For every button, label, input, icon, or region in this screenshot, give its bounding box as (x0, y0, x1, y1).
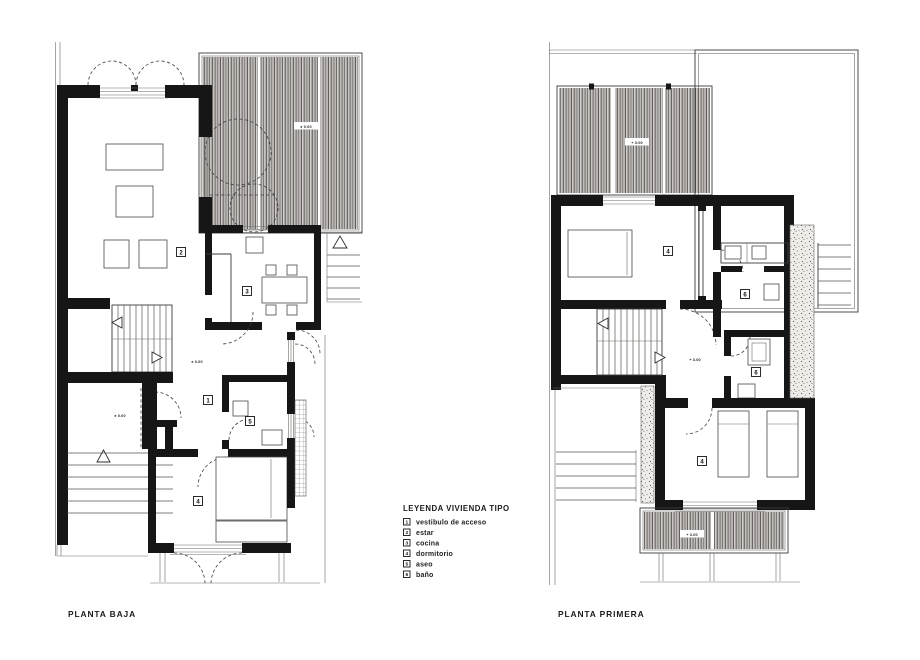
wall-west (148, 449, 156, 553)
wall-east (805, 398, 815, 510)
wall-stair-south (551, 375, 666, 384)
legend-label: cocina (416, 541, 439, 548)
plot-edge-lines (57, 545, 148, 556)
wall-partition (721, 266, 742, 272)
wall-west (724, 330, 731, 356)
legend-number: 5 (405, 562, 408, 568)
washbasin (738, 384, 755, 398)
entry-door-swing (88, 61, 136, 85)
room-aseo: 5 (222, 375, 290, 449)
side-passage-east (287, 330, 325, 532)
wall-north (205, 225, 243, 233)
entry-door-swing (136, 61, 184, 85)
wall-south (205, 322, 262, 330)
terrace-garden: ± 0.00 (199, 53, 362, 302)
gravel-strip-west (641, 386, 654, 503)
wall-north (268, 225, 321, 233)
legend-item: 3 cocina (404, 540, 440, 548)
floor-plan-planta-primera: + 3.00 4 (549, 42, 858, 585)
interior-stair: + 3.00 (551, 300, 722, 408)
wall-north (228, 449, 290, 457)
level-distribuidor: + 3.00 (689, 358, 701, 362)
porch-columns (640, 553, 800, 582)
door-swing (295, 344, 315, 364)
exterior-stair-treads (67, 453, 173, 513)
wall-stair-north (57, 298, 110, 309)
toilet (764, 284, 779, 300)
wall-stair-north (551, 300, 666, 309)
wardrobe (216, 521, 287, 542)
plan-title-planta-primera: PLANTA PRIMERA (558, 609, 645, 619)
legend-label: dormitorio (416, 551, 453, 558)
stair-direction-arrow (112, 317, 122, 328)
deck-joint (318, 57, 321, 229)
armchair (104, 240, 129, 268)
wall-north (222, 375, 290, 382)
interior-stair (57, 298, 172, 372)
level-marker-triangle (333, 236, 347, 248)
wall-west (551, 195, 561, 390)
wall-south (757, 500, 815, 510)
sink (752, 246, 766, 259)
wall-north (724, 330, 784, 337)
door-swing (296, 330, 320, 354)
wall-west (724, 376, 731, 400)
deck-joint (663, 88, 666, 193)
plan-title-planta-baja: PLANTA BAJA (68, 609, 136, 619)
wall-south (655, 500, 683, 510)
wall-east (199, 85, 212, 137)
legend-title: LEYENDA VIVIENDA TIPO (403, 504, 510, 513)
deck-joint (711, 512, 714, 549)
legend-number: 6 (405, 572, 408, 578)
wall-stub (698, 206, 706, 211)
legend-item: 2 estar (404, 529, 434, 537)
wall-west (713, 206, 721, 250)
wall-north (655, 195, 790, 206)
legend-label: baño (416, 572, 434, 579)
legend-label: aseo (416, 562, 433, 569)
stair-treads (118, 305, 166, 372)
sink (246, 237, 263, 253)
exterior-stair-treads (818, 245, 851, 305)
grate-grid (295, 400, 306, 496)
level-balcon: + 3.00 (686, 533, 698, 537)
floor-plan-planta-baja: ± 0.00 2 (56, 42, 363, 584)
border-tick (589, 84, 594, 90)
bed (568, 230, 632, 277)
south-window-sill (170, 545, 246, 555)
chair (287, 305, 297, 315)
roof-edge-lines (549, 50, 697, 54)
toilet (262, 430, 282, 445)
wall-stub (157, 420, 177, 427)
wall-north (62, 85, 100, 98)
stair-treads (603, 309, 657, 375)
wall-north (712, 398, 815, 408)
north-window-sill (603, 197, 655, 204)
room-estar: 2 (62, 61, 212, 268)
gravel-strip-east (790, 225, 814, 398)
level-vestibulo: ± 0.00 (191, 360, 202, 364)
exterior-stair-treads (327, 255, 360, 299)
sofa (116, 186, 153, 217)
room-dormitorio-sur: 4 (655, 398, 815, 512)
wall-east (314, 225, 321, 330)
bedroom-door-swing (686, 408, 712, 434)
terrace-deck-hatch (203, 57, 358, 229)
washbasin (233, 401, 248, 416)
exterior-stair-west (553, 388, 641, 502)
legend-item: 6 baño (404, 571, 434, 579)
wall-west (222, 440, 229, 449)
wall-west (655, 398, 665, 510)
border-tick (666, 84, 671, 90)
wall-west (713, 272, 721, 337)
exterior-stair-treads (556, 452, 636, 500)
legend-label: vestibulo de acceso (416, 520, 486, 527)
stair-direction-arrow (655, 352, 665, 363)
balcony-south: + 3.00 (640, 508, 800, 582)
legend: LEYENDA VIVIENDA TIPO 1 vestibulo de acc… (403, 504, 510, 579)
door-swing (155, 392, 181, 418)
wall-south (148, 543, 174, 553)
bed (767, 411, 798, 477)
chair (287, 265, 297, 275)
legend-number: 3 (405, 541, 408, 547)
wall-north (557, 195, 603, 206)
deck-joint (611, 88, 615, 193)
level-marker-triangle (97, 450, 110, 462)
legend-item: 5 aseo (404, 561, 433, 569)
table (106, 144, 163, 170)
stair-direction-arrow (152, 352, 162, 363)
chair (266, 305, 276, 315)
dining-table (262, 277, 307, 303)
porch-door-swing (174, 553, 205, 584)
wall-west (205, 233, 212, 295)
porch-door-swing (211, 553, 242, 584)
bed (718, 411, 749, 477)
wall-west (57, 85, 68, 545)
legend-number: 4 (405, 551, 408, 557)
wall-south (296, 322, 321, 330)
floor-plans-canvas: ± 0.00 2 (0, 0, 920, 660)
wall-west (222, 382, 229, 412)
room-dormitorio-norte: 4 (568, 206, 706, 302)
wardrobe-front (699, 206, 703, 300)
deck-joint (258, 57, 261, 229)
garden-edge-line (553, 388, 641, 502)
level-terraza: ± 0.00 (300, 125, 311, 129)
chair (266, 265, 276, 275)
wall-east (142, 383, 157, 449)
legend-label: estar (416, 530, 434, 537)
legend-number: 2 (405, 530, 408, 536)
armchair (139, 240, 167, 268)
legend-number: 1 (405, 520, 408, 526)
legend-item: 4 dormitorio (404, 550, 454, 558)
wall-stub (165, 427, 173, 450)
room-bano-sur: 6 (724, 330, 784, 400)
wall-north (67, 372, 173, 383)
bedroom-door-swing (680, 309, 716, 345)
south-window-sill (675, 502, 765, 512)
room-cocina: 3 (205, 225, 321, 330)
architectural-drawing-sheet: ± 0.00 2 (0, 0, 920, 660)
wall-south (242, 543, 291, 553)
upper-terrace: + 3.00 (557, 84, 712, 196)
level-terraza: + 3.00 (631, 141, 643, 145)
bed (216, 457, 287, 520)
room-bano-norte: 6 (713, 206, 790, 337)
legend-item: 1 vestibulo de acceso (404, 519, 487, 527)
access-area: ± 0.00 (57, 372, 177, 556)
wall-partition (764, 266, 790, 272)
bath-door-swing (731, 337, 750, 356)
sink (725, 246, 741, 259)
level-acceso: ± 0.00 (114, 414, 125, 418)
